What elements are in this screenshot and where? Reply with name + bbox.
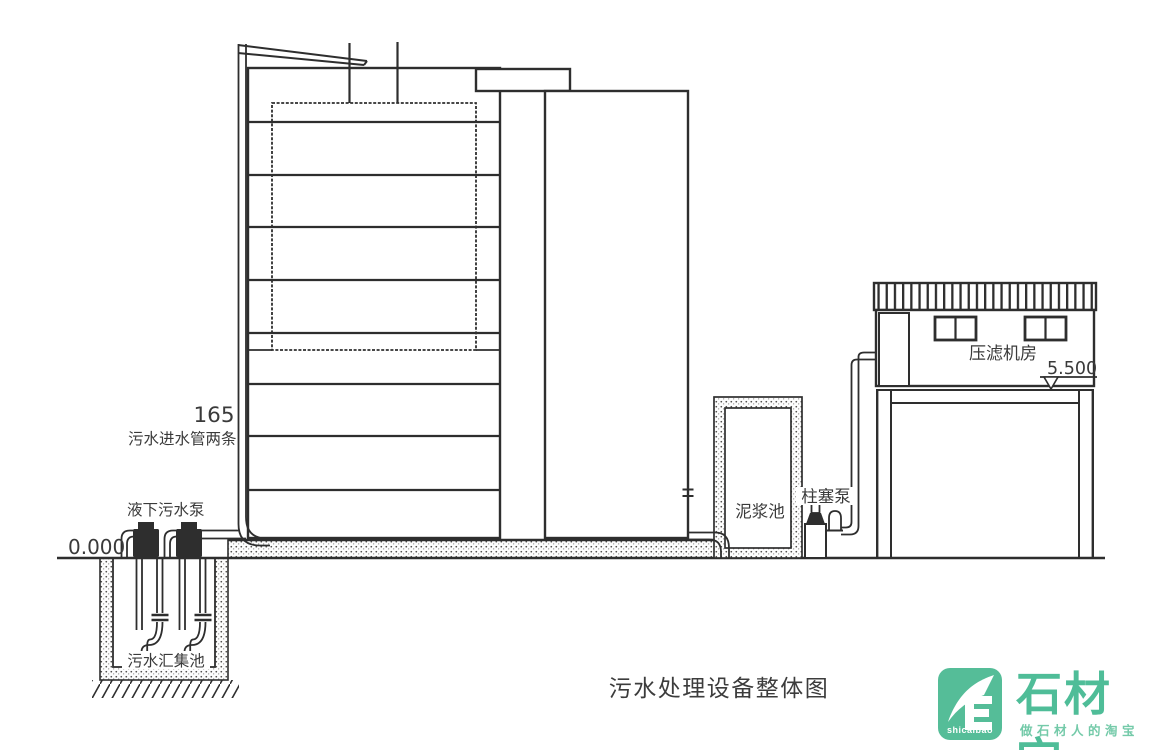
logo-latin-text: shicaibao <box>938 725 1002 735</box>
collection-pit-structure <box>92 558 239 698</box>
large-tank <box>545 91 688 538</box>
pit-base-hatch <box>92 680 239 698</box>
submersible-pump-unit-1 <box>122 522 160 558</box>
label-roof-level: 5.500 <box>1047 359 1097 379</box>
label-plunger-pump: 柱塞泵 <box>801 487 851 506</box>
logo-tagline-text: 做石材人的淘宝 <box>1020 720 1139 739</box>
building-window-2 <box>1025 317 1066 340</box>
label-submersible-pump: 液下污水泵 <box>127 501 205 519</box>
building-window-1 <box>935 317 976 340</box>
building-platform-columns <box>877 390 1093 558</box>
submersible-pump-unit-2 <box>165 522 203 558</box>
slurry-pool-structure <box>714 397 802 558</box>
label-pipe-size: 165 <box>193 403 234 428</box>
label-collection-pit: 污水汇集池 <box>127 652 205 670</box>
label-slurry-pool: 泥浆池 <box>735 502 785 521</box>
building-roof <box>874 283 1096 310</box>
main-treatment-tower <box>248 68 500 538</box>
logo-tile: shicaibao <box>938 668 1002 740</box>
building-door <box>879 313 909 386</box>
label-inlet-pipe: 污水进水管两条 <box>128 430 237 448</box>
diagram-canvas: 165 污水进水管两条 液下污水泵 0.000 污水汇集池 泥浆池 柱塞泵 压滤… <box>0 0 1158 750</box>
watermark-logo: shicaibao 石材宝 做石材人的淘宝 <box>938 664 1150 744</box>
diagram-title: 污水处理设备整体图 <box>609 675 830 701</box>
label-filter-press-room: 压滤机房 <box>969 344 1037 363</box>
filter-press-building <box>874 283 1097 558</box>
tower-top-box <box>476 69 570 91</box>
plunger-pump-unit <box>805 504 843 558</box>
label-ground-level: 0.000 <box>68 535 125 559</box>
pump-to-building-pipe <box>841 353 876 535</box>
inlet-pipe-slope <box>238 45 367 65</box>
sewage-plant-elevation-drawing: 165 污水进水管两条 液下污水泵 0.000 污水汇集池 泥浆池 柱塞泵 压滤… <box>0 0 1158 750</box>
foundation-slab <box>228 540 715 558</box>
